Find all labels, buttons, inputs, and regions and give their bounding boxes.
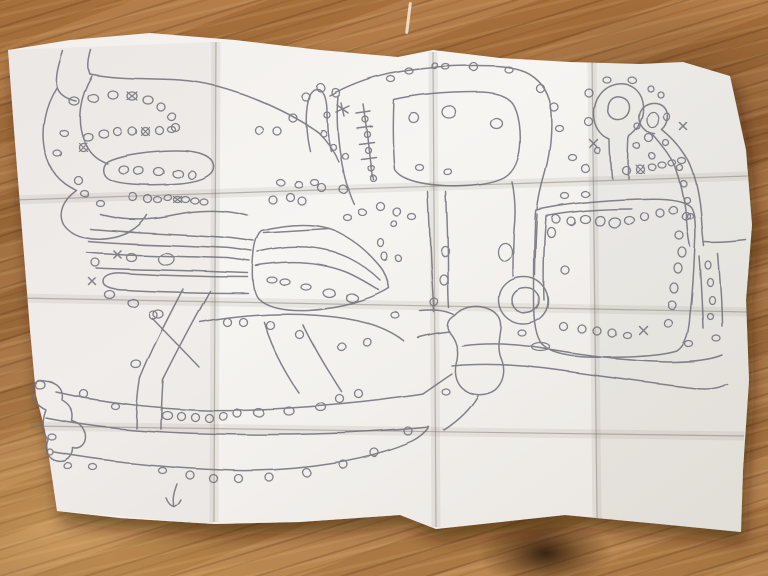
- paper-fold-shading: [8, 42, 216, 524]
- paper-sheet: [8, 33, 752, 532]
- paper-map-scene: [0, 0, 768, 576]
- photo-of-hand-drawn-map: [0, 0, 768, 576]
- paper-fold-shading: [592, 62, 752, 532]
